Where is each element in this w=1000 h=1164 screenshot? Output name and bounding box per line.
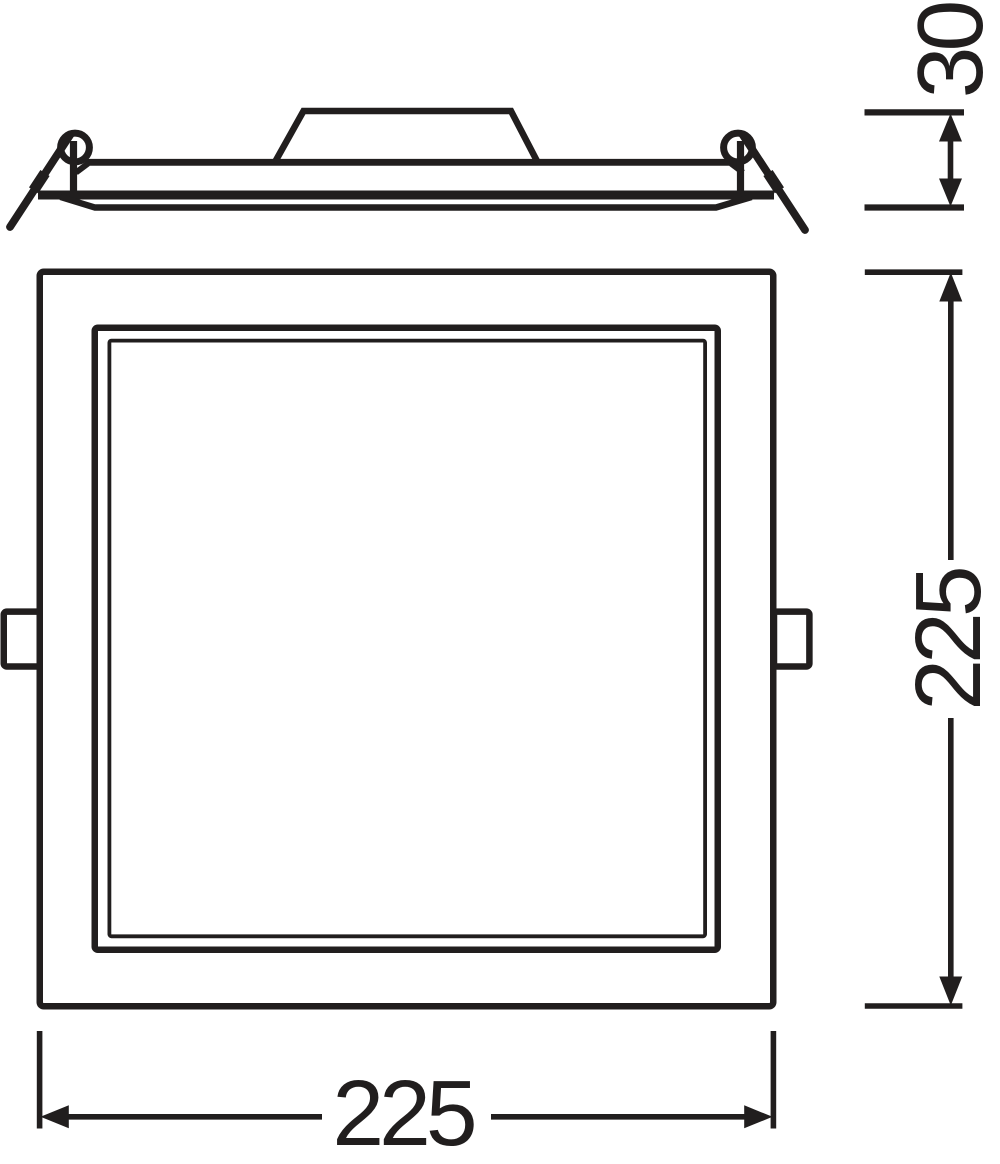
svg-text:30: 30 <box>898 3 1000 99</box>
svg-text:225: 225 <box>896 569 1000 710</box>
svg-text:225: 225 <box>332 1061 473 1164</box>
